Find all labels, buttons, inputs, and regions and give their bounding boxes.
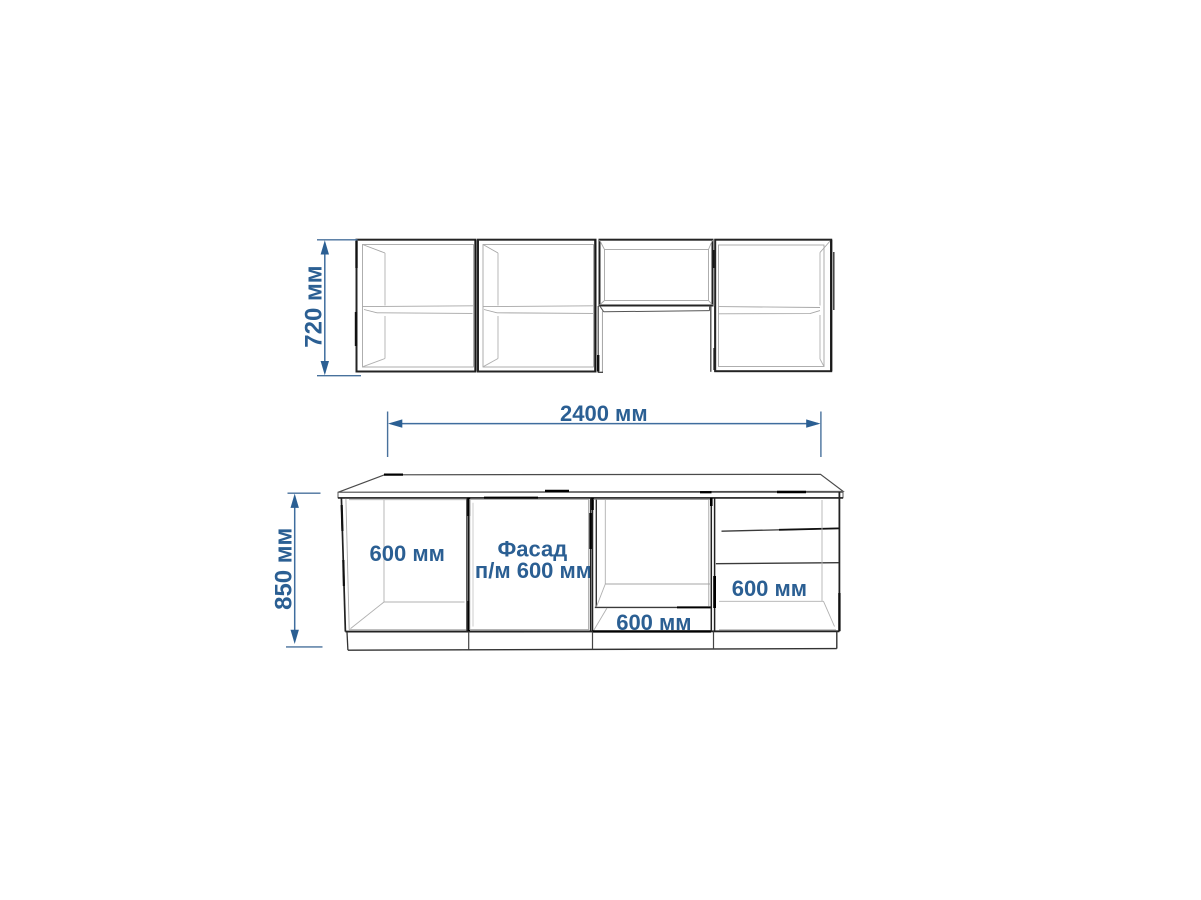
svg-text:600 мм: 600 мм <box>370 541 445 566</box>
svg-text:600 мм: 600 мм <box>732 576 807 601</box>
svg-text:2400 мм: 2400 мм <box>560 401 648 426</box>
svg-text:600 мм: 600 мм <box>616 610 691 635</box>
svg-text:720 мм: 720 мм <box>301 265 328 347</box>
svg-text:п/м 600 мм: п/м 600 мм <box>475 558 592 583</box>
svg-text:850 мм: 850 мм <box>270 528 297 610</box>
